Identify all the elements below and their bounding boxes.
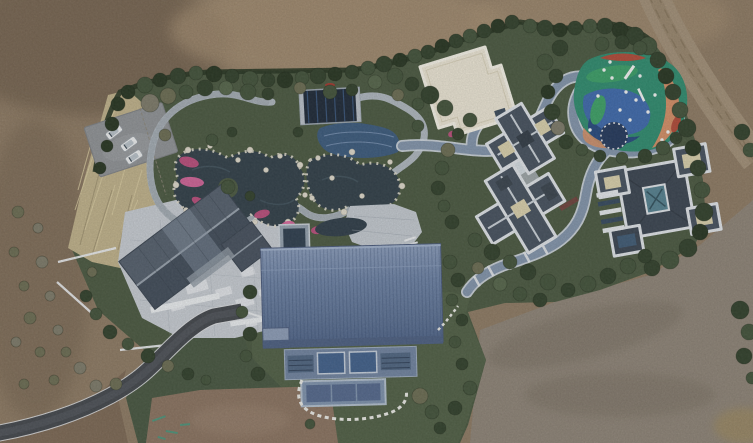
aerial-photo-stage [0,0,753,443]
aerial-estate-photo [0,0,753,443]
photo-grain-light [0,0,753,443]
